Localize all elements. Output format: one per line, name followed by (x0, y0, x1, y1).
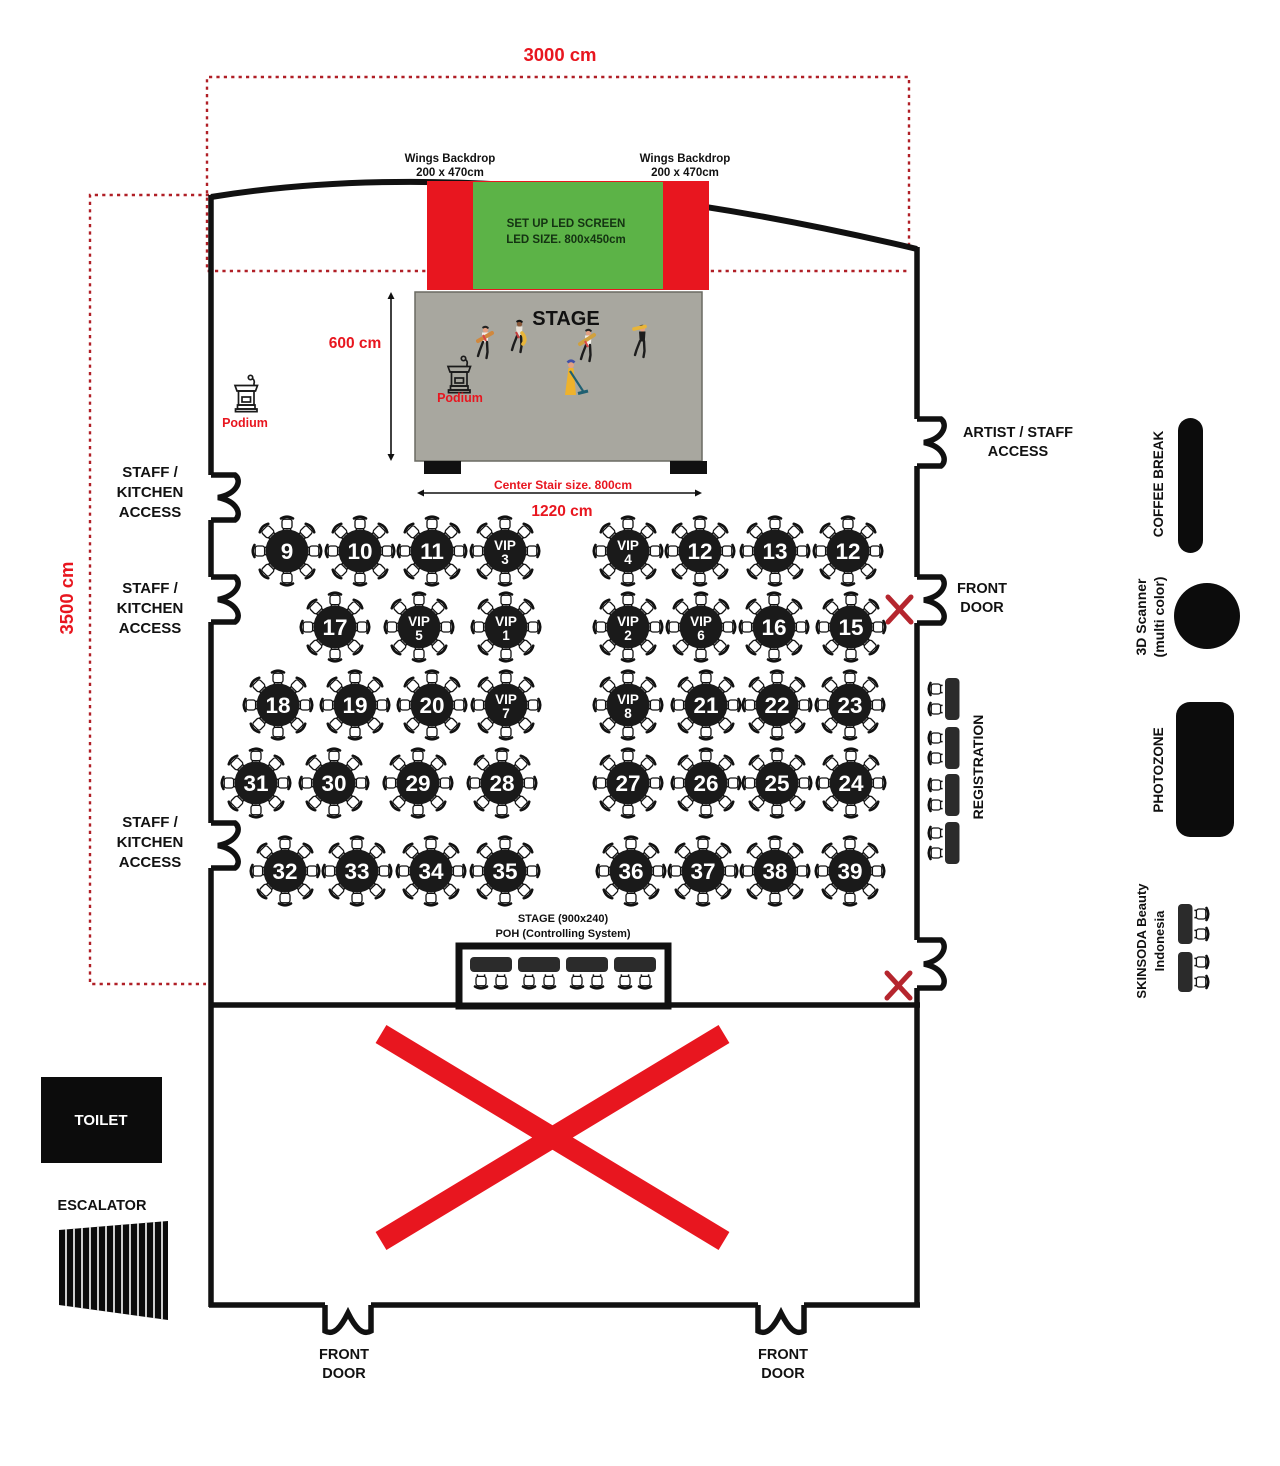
svg-text:27: 27 (615, 771, 640, 796)
svg-text:3: 3 (501, 552, 509, 567)
svg-text:(multi color): (multi color) (1151, 577, 1167, 658)
svg-text:35: 35 (492, 859, 517, 884)
svg-text:DOOR: DOOR (960, 600, 1004, 616)
svg-text:39: 39 (837, 859, 862, 884)
svg-text:32: 32 (272, 859, 297, 884)
svg-text:Indonesia: Indonesia (1152, 910, 1167, 971)
svg-text:STAFF /: STAFF / (122, 464, 178, 481)
svg-text:ACCESS: ACCESS (119, 504, 182, 521)
svg-text:VIP: VIP (495, 692, 517, 707)
svg-text:1220 cm: 1220 cm (531, 503, 592, 520)
svg-text:22: 22 (764, 693, 789, 718)
svg-text:7: 7 (502, 706, 510, 721)
svg-text:13: 13 (762, 539, 787, 564)
svg-text:Podium: Podium (222, 416, 268, 430)
svg-text:DOOR: DOOR (761, 1366, 805, 1382)
svg-text:12: 12 (687, 539, 712, 564)
svg-text:200 x 470cm: 200 x 470cm (651, 167, 719, 179)
svg-text:DOOR: DOOR (322, 1366, 366, 1382)
svg-text:3500 cm: 3500 cm (56, 561, 77, 634)
svg-text:37: 37 (690, 859, 715, 884)
svg-text:23: 23 (837, 693, 862, 718)
svg-text:STAFF /: STAFF / (122, 580, 178, 597)
svg-text:KITCHEN: KITCHEN (117, 834, 184, 851)
svg-text:33: 33 (344, 859, 369, 884)
svg-text:VIP: VIP (494, 538, 516, 553)
svg-text:17: 17 (322, 615, 347, 640)
svg-text:VIP: VIP (617, 614, 639, 629)
svg-text:KITCHEN: KITCHEN (117, 484, 184, 501)
svg-text:FRONT: FRONT (319, 1347, 369, 1363)
svg-text:24: 24 (838, 771, 864, 796)
svg-text:38: 38 (762, 859, 787, 884)
svg-text:ESCALATOR: ESCALATOR (58, 1198, 147, 1214)
svg-text:20: 20 (419, 693, 444, 718)
svg-text:VIP: VIP (408, 614, 430, 629)
svg-text:STAFF /: STAFF / (122, 814, 178, 831)
svg-text:SET UP LED SCREEN: SET UP LED SCREEN (507, 218, 626, 230)
svg-text:26: 26 (693, 771, 718, 796)
svg-text:2: 2 (624, 628, 632, 643)
svg-text:STAGE (900x240): STAGE (900x240) (518, 913, 609, 925)
svg-text:1: 1 (502, 628, 510, 643)
svg-text:5: 5 (415, 628, 423, 643)
svg-text:Podium: Podium (437, 391, 483, 405)
svg-text:TOILET: TOILET (74, 1112, 127, 1129)
svg-text:15: 15 (838, 615, 863, 640)
svg-text:FRONT: FRONT (957, 581, 1007, 597)
svg-text:30: 30 (321, 771, 346, 796)
svg-text:29: 29 (405, 771, 430, 796)
svg-text:STAGE: STAGE (532, 308, 599, 330)
svg-text:POH (Controlling System): POH (Controlling System) (495, 928, 630, 940)
svg-text:ACCESS: ACCESS (988, 444, 1049, 460)
svg-text:19: 19 (342, 693, 367, 718)
svg-text:31: 31 (243, 771, 268, 796)
svg-text:9: 9 (281, 539, 294, 564)
svg-text:ACCESS: ACCESS (119, 620, 182, 637)
svg-text:36: 36 (618, 859, 643, 884)
svg-text:34: 34 (418, 859, 444, 884)
svg-text:11: 11 (420, 539, 444, 564)
svg-text:ACCESS: ACCESS (119, 854, 182, 871)
svg-text:Center Stair size. 800cm: Center Stair size. 800cm (494, 478, 632, 492)
svg-text:25: 25 (764, 771, 789, 796)
svg-text:FRONT: FRONT (758, 1347, 808, 1363)
svg-text:18: 18 (265, 693, 290, 718)
svg-text:VIP: VIP (495, 614, 517, 629)
svg-text:8: 8 (624, 706, 632, 721)
svg-text:16: 16 (761, 615, 786, 640)
svg-text:3000 cm: 3000 cm (523, 44, 596, 65)
svg-text:Wings Backdrop: Wings Backdrop (640, 153, 731, 165)
svg-text:21: 21 (693, 693, 718, 718)
svg-text:ARTIST / STAFF: ARTIST / STAFF (963, 425, 1073, 441)
svg-text:Wings Backdrop: Wings Backdrop (405, 153, 496, 165)
svg-text:VIP: VIP (690, 614, 712, 629)
svg-text:LED SIZE. 800x450cm: LED SIZE. 800x450cm (506, 234, 626, 246)
svg-text:PHOTOZONE: PHOTOZONE (1151, 727, 1166, 812)
svg-text:SKINSODA Beauty: SKINSODA Beauty (1134, 883, 1149, 999)
svg-text:COFFEE BREAK: COFFEE BREAK (1151, 431, 1166, 538)
svg-text:REGISTRATION: REGISTRATION (970, 715, 986, 820)
svg-text:4: 4 (624, 552, 632, 567)
svg-text:12: 12 (835, 539, 860, 564)
svg-text:6: 6 (697, 628, 705, 643)
svg-text:VIP: VIP (617, 538, 639, 553)
svg-text:10: 10 (347, 539, 372, 564)
svg-text:KITCHEN: KITCHEN (117, 600, 184, 617)
svg-text:600 cm: 600 cm (329, 335, 382, 352)
svg-text:28: 28 (489, 771, 514, 796)
svg-text:VIP: VIP (617, 692, 639, 707)
svg-text:200 x 470cm: 200 x 470cm (416, 167, 484, 179)
svg-text:3D Scanner: 3D Scanner (1133, 578, 1149, 656)
